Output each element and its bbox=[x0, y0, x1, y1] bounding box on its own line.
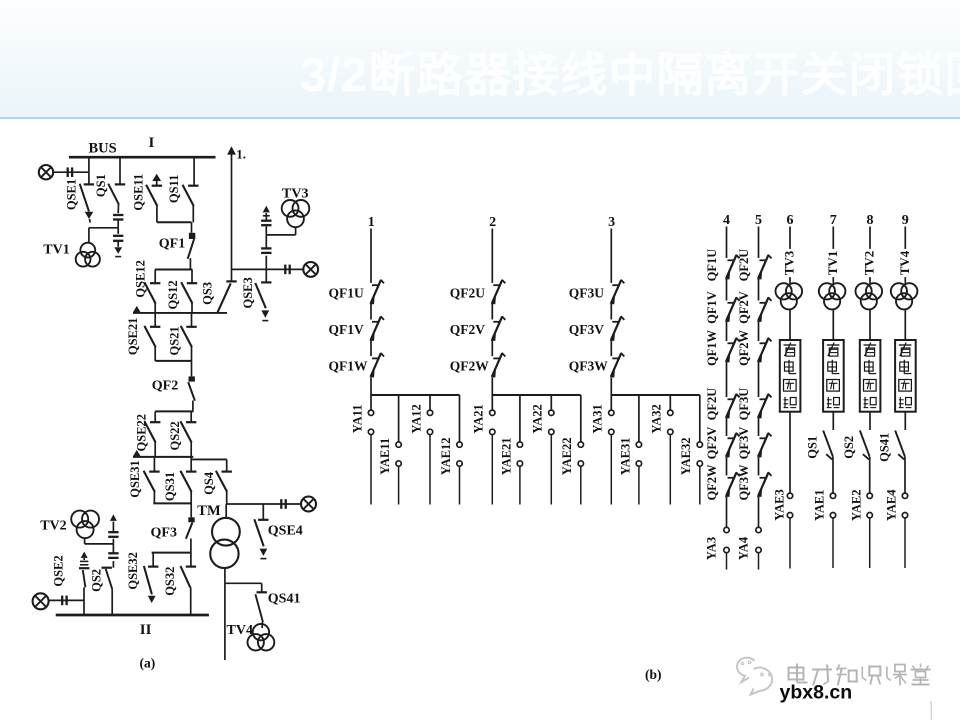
svg-text:QS1: QS1 bbox=[94, 174, 108, 197]
svg-text:YA12: YA12 bbox=[409, 404, 423, 433]
svg-text:TV4: TV4 bbox=[227, 623, 253, 638]
svg-text:QS21: QS21 bbox=[167, 326, 181, 355]
svg-text:BUS: BUS bbox=[89, 141, 117, 157]
svg-text:3: 3 bbox=[608, 215, 615, 230]
svg-text:QSE21: QSE21 bbox=[126, 318, 140, 356]
svg-text:QS3: QS3 bbox=[200, 282, 214, 305]
svg-text:QS41: QS41 bbox=[268, 592, 301, 607]
svg-text:YA31: YA31 bbox=[591, 404, 605, 433]
svg-text:TV4: TV4 bbox=[897, 250, 912, 275]
svg-text:QF3U: QF3U bbox=[737, 388, 751, 421]
svg-text:1.: 1. bbox=[236, 147, 246, 162]
svg-text:QF2U: QF2U bbox=[737, 249, 751, 282]
svg-text:8: 8 bbox=[867, 213, 874, 228]
svg-text:ybx8.cn: ybx8.cn bbox=[780, 682, 853, 704]
svg-text:QSE2: QSE2 bbox=[52, 555, 66, 586]
svg-text:QS4: QS4 bbox=[202, 471, 216, 495]
svg-text:YA22: YA22 bbox=[531, 404, 545, 433]
svg-text:(a): (a) bbox=[140, 656, 156, 671]
svg-text:YAE3: YAE3 bbox=[773, 489, 787, 521]
svg-text:QF1W: QF1W bbox=[329, 359, 368, 374]
svg-text:YAE4: YAE4 bbox=[885, 489, 899, 521]
svg-text:QSE11: QSE11 bbox=[131, 174, 145, 211]
svg-text:YAE31: YAE31 bbox=[618, 438, 632, 476]
svg-text:QS22: QS22 bbox=[168, 421, 182, 450]
svg-text:QF2W: QF2W bbox=[450, 359, 489, 374]
svg-text:QF1U: QF1U bbox=[329, 286, 364, 301]
svg-text:YA21: YA21 bbox=[472, 404, 486, 433]
svg-text:TM: TM bbox=[197, 503, 221, 519]
svg-text:TV2: TV2 bbox=[40, 519, 66, 534]
svg-text:QF3W: QF3W bbox=[737, 464, 751, 501]
svg-text:QSE12: QSE12 bbox=[134, 260, 148, 298]
svg-text:4: 4 bbox=[723, 213, 730, 228]
svg-text:QF3V: QF3V bbox=[569, 322, 604, 337]
svg-text:QS12: QS12 bbox=[166, 280, 180, 309]
svg-text:QF1V: QF1V bbox=[329, 322, 364, 337]
svg-text:7: 7 bbox=[830, 213, 837, 228]
svg-text:YAE1: YAE1 bbox=[813, 490, 827, 522]
svg-text:(b): (b) bbox=[645, 667, 662, 682]
svg-text:QF3V: QF3V bbox=[737, 427, 751, 460]
svg-text:QSE3: QSE3 bbox=[241, 277, 255, 308]
svg-text:9: 9 bbox=[902, 213, 909, 228]
svg-text:TV3: TV3 bbox=[782, 250, 797, 275]
svg-text:QF3: QF3 bbox=[151, 526, 177, 541]
svg-text:YAE22: YAE22 bbox=[560, 438, 574, 476]
svg-text:QSE32: QSE32 bbox=[126, 552, 140, 590]
svg-text:QS31: QS31 bbox=[163, 472, 177, 501]
svg-text:TV1: TV1 bbox=[43, 243, 69, 258]
svg-text:YAE2: YAE2 bbox=[849, 490, 863, 522]
svg-text:YAE32: YAE32 bbox=[679, 438, 693, 476]
svg-text:QS2: QS2 bbox=[842, 436, 856, 459]
svg-text:TV2: TV2 bbox=[862, 251, 877, 276]
svg-text:YA32: YA32 bbox=[650, 404, 664, 433]
svg-text:YA4: YA4 bbox=[737, 536, 751, 560]
svg-text:QS1: QS1 bbox=[805, 436, 819, 459]
svg-text:QF1W: QF1W bbox=[705, 329, 719, 366]
svg-text:QF2V: QF2V bbox=[450, 322, 485, 337]
svg-text:QF1: QF1 bbox=[159, 236, 185, 251]
svg-text:QF1U: QF1U bbox=[705, 249, 719, 282]
svg-text:QF2W: QF2W bbox=[737, 329, 751, 366]
svg-text:YAE21: YAE21 bbox=[499, 438, 513, 476]
svg-text:YAE11: YAE11 bbox=[378, 438, 392, 475]
svg-text:2: 2 bbox=[489, 215, 496, 230]
svg-text:1: 1 bbox=[368, 215, 375, 230]
svg-text:TV3: TV3 bbox=[282, 187, 308, 202]
svg-text:YA3: YA3 bbox=[705, 537, 719, 560]
svg-text:I: I bbox=[149, 135, 155, 151]
svg-text:QF3W: QF3W bbox=[569, 359, 608, 374]
svg-text:QF2W: QF2W bbox=[705, 464, 719, 501]
svg-text:YA11: YA11 bbox=[350, 405, 364, 434]
svg-text:QF1V: QF1V bbox=[705, 291, 719, 324]
svg-text:6: 6 bbox=[787, 213, 794, 228]
svg-text:QS2: QS2 bbox=[90, 569, 104, 592]
svg-text:TV1: TV1 bbox=[825, 251, 840, 276]
svg-text:QSE22: QSE22 bbox=[134, 414, 148, 452]
svg-text:QS32: QS32 bbox=[163, 567, 177, 596]
svg-text:QF2V: QF2V bbox=[705, 427, 719, 460]
svg-text:QSE4: QSE4 bbox=[268, 524, 303, 539]
svg-text:QSE31: QSE31 bbox=[128, 460, 142, 498]
svg-text:II: II bbox=[140, 622, 152, 638]
svg-text:QF2V: QF2V bbox=[737, 291, 751, 324]
svg-text:QF2U: QF2U bbox=[450, 286, 485, 301]
svg-text:5: 5 bbox=[755, 213, 762, 228]
svg-text:QF2: QF2 bbox=[152, 378, 178, 393]
svg-text:QF2U: QF2U bbox=[705, 388, 719, 421]
svg-text:QS11: QS11 bbox=[167, 175, 181, 204]
svg-text:QS41: QS41 bbox=[877, 433, 891, 462]
svg-text:YAE12: YAE12 bbox=[439, 438, 453, 476]
svg-text:QSE1: QSE1 bbox=[65, 179, 79, 210]
svg-text:QF3U: QF3U bbox=[569, 286, 604, 301]
